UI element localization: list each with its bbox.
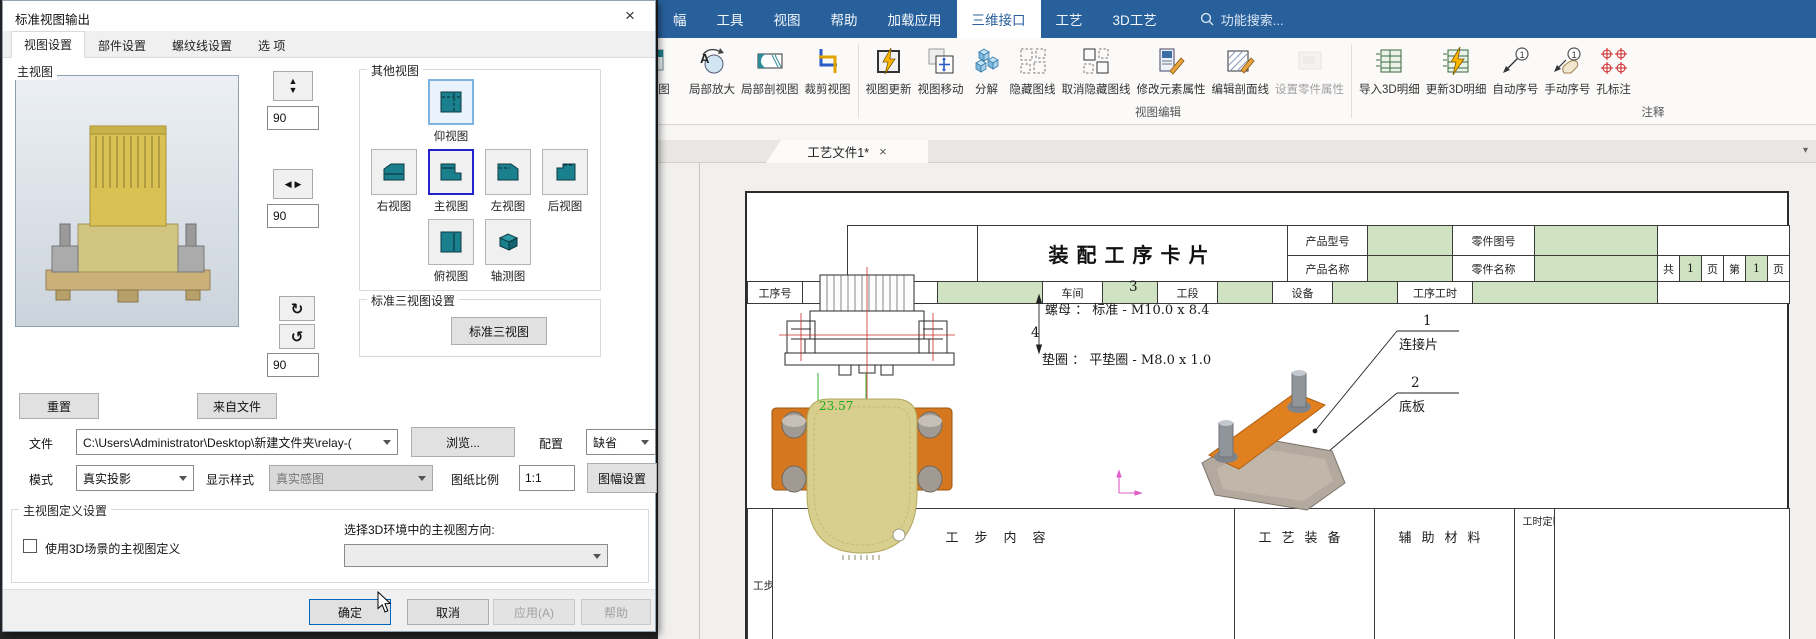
from-file-button[interactable]: 来自文件 bbox=[197, 393, 277, 419]
horizontal-angle-field[interactable]: 90 bbox=[267, 204, 319, 228]
ribbon-item-import-3d-bom[interactable]: 导入3D明细 bbox=[1356, 42, 1423, 99]
iso-view-label: 轴测图 bbox=[478, 268, 538, 284]
bottom-view-icon bbox=[438, 89, 464, 115]
ribbon-item-local-section[interactable]: 局部剖视图 bbox=[738, 42, 802, 99]
ribbon-item-update-3d-bom[interactable]: 更新3D明细 bbox=[1423, 42, 1490, 99]
apply-button: 应用(A) bbox=[493, 599, 575, 625]
browse-button[interactable]: 浏览... bbox=[411, 427, 515, 457]
balloon-1: 1 bbox=[1423, 313, 1432, 329]
main-view-def-group-label: 主视图定义设置 bbox=[19, 502, 111, 519]
svg-text:A: A bbox=[700, 51, 710, 66]
rotation-angle-field[interactable]: 90 bbox=[267, 353, 319, 377]
left-view-button[interactable] bbox=[485, 149, 531, 195]
panel-edge-line bbox=[699, 163, 700, 639]
back-view-button[interactable] bbox=[542, 149, 588, 195]
iso-view-icon bbox=[495, 229, 521, 255]
chevron-down-icon[interactable] bbox=[383, 440, 391, 445]
top-view-icon bbox=[438, 229, 464, 255]
edit-element-props-icon bbox=[1154, 44, 1188, 78]
relay-3d-preview bbox=[16, 76, 238, 326]
balloon-2: 2 bbox=[1411, 375, 1420, 391]
left-view-label: 左视图 bbox=[478, 198, 538, 214]
drawing-canvas[interactable]: 装配工序卡片 产品型号 零件图号 产品名称 零件名称 共 1 页 第 1 页 工… bbox=[658, 163, 1816, 639]
part-label-connector: 连接片 bbox=[1399, 334, 1438, 353]
ribbon-group-annotation: 注释 bbox=[1608, 104, 1698, 120]
chevron-down-icon bbox=[418, 476, 426, 481]
auto-balloon-icon: 1 bbox=[1498, 44, 1532, 78]
part-props-icon bbox=[1293, 44, 1327, 78]
top-view-label: 俯视图 bbox=[421, 268, 481, 284]
ribbon-item-crop-view[interactable]: 裁剪视图 bbox=[802, 42, 854, 99]
menu-item-3d-interface[interactable]: 三维接口 bbox=[957, 0, 1041, 38]
menu-bar: 幅 工具 视图 帮助 加载应用 三维接口 工艺 3D工艺 功能搜索... bbox=[658, 0, 1816, 38]
ribbon-item-manual-balloon[interactable]: 1 手动序号 bbox=[1541, 42, 1593, 99]
ribbon-separator bbox=[858, 44, 859, 118]
detail-zoom-icon: A bbox=[695, 44, 729, 78]
washer-spec-note: 垫圈 ： 平垫圈 - M8.0 x 1.0 bbox=[1042, 349, 1211, 368]
document-tab-label: 工艺文件1* bbox=[807, 142, 869, 161]
tab-options[interactable]: 选 项 bbox=[245, 33, 298, 57]
mode-value: 真实投影 bbox=[83, 470, 131, 487]
import-3d-bom-icon bbox=[1372, 44, 1406, 78]
horizontal-angle-value: 90 bbox=[273, 209, 286, 223]
display-style-label: 显示样式 bbox=[206, 471, 254, 488]
ribbon-separator bbox=[1351, 44, 1352, 118]
other-views-group-label: 其他视图 bbox=[367, 62, 423, 79]
view-move-icon bbox=[924, 44, 958, 78]
partial-view-icon bbox=[658, 44, 681, 78]
ribbon-item-explode[interactable]: 分解 bbox=[967, 42, 1007, 99]
bottom-view-button[interactable] bbox=[428, 79, 474, 125]
orientation-label: 选择3D环境中的主视图方向: bbox=[344, 521, 495, 538]
view-update-icon bbox=[872, 44, 906, 78]
nut-spec-note: 螺母 ： 标准 - M10.0 x 8.4 bbox=[1045, 299, 1209, 318]
search-icon bbox=[1200, 12, 1214, 26]
document-tab[interactable]: 工艺文件1* × bbox=[766, 140, 928, 163]
part-label-baseplate: 底板 bbox=[1399, 396, 1425, 415]
rotation-angle-value: 90 bbox=[273, 358, 286, 372]
balloon-4: 4 bbox=[1031, 325, 1040, 341]
hide-lines-icon bbox=[1016, 44, 1050, 78]
help-button: 帮助 bbox=[581, 599, 651, 625]
menu-item-help[interactable]: 帮助 bbox=[816, 0, 873, 38]
explode-icon bbox=[970, 44, 1004, 78]
mode-combo[interactable]: 真实投影 bbox=[76, 465, 194, 491]
down-arrow-icon[interactable]: ▼ bbox=[289, 86, 298, 95]
drawing-scale-field[interactable]: 1:1 bbox=[519, 465, 575, 491]
unhide-lines-icon bbox=[1079, 44, 1113, 78]
back-view-label: 后视图 bbox=[535, 198, 595, 214]
tab-view-settings[interactable]: 视图设置 bbox=[11, 31, 85, 58]
menu-item-view[interactable]: 视图 bbox=[759, 0, 816, 38]
reset-button[interactable]: 重置 bbox=[19, 393, 99, 419]
ribbon-item-part-props: 设置零件属性 bbox=[1272, 42, 1347, 99]
mode-label: 模式 bbox=[29, 471, 53, 488]
dialog-title: 标准视图输出 bbox=[15, 9, 90, 28]
manual-balloon-icon: 1 bbox=[1550, 44, 1584, 78]
dialog-titlebar[interactable]: 标准视图输出 × bbox=[3, 1, 655, 31]
menu-item-3d-process[interactable]: 3D工艺 bbox=[1098, 0, 1172, 38]
right-view-icon bbox=[381, 159, 407, 185]
drawing-scale-label: 图纸比例 bbox=[451, 471, 499, 488]
display-style-combo: 真实感图 bbox=[269, 465, 433, 491]
menu-item-sheet[interactable]: 幅 bbox=[658, 0, 702, 38]
ribbon-lower-strip bbox=[658, 125, 1816, 140]
local-section-icon bbox=[753, 44, 787, 78]
hole-callout-icon bbox=[1597, 44, 1631, 78]
ribbon-item-edit-element-props[interactable]: 修改元素属性 bbox=[1134, 42, 1209, 99]
rotate-cw-icon: ↻ bbox=[291, 300, 304, 318]
cad-window: 幅 工具 视图 帮助 加载应用 三维接口 工艺 3D工艺 功能搜索... 图 bbox=[658, 0, 1816, 639]
drawing-sheet: 装配工序卡片 产品型号 零件图号 产品名称 零件名称 共 1 页 第 1 页 工… bbox=[745, 191, 1789, 639]
cancel-button[interactable]: 取消 bbox=[407, 599, 489, 625]
main-view-group-label: 主视图 bbox=[13, 63, 57, 80]
menu-item-load-apps[interactable]: 加载应用 bbox=[873, 0, 957, 38]
vertical-angle-value: 90 bbox=[273, 111, 286, 125]
update-3d-bom-icon bbox=[1439, 44, 1473, 78]
drawing-views-graphics bbox=[747, 193, 1791, 639]
file-label: 文件 bbox=[29, 435, 53, 452]
rotate-ccw-button[interactable]: ↺ bbox=[279, 324, 315, 349]
search-placeholder: 功能搜索... bbox=[1221, 10, 1284, 29]
chevron-down-icon[interactable] bbox=[593, 554, 601, 559]
left-view-icon bbox=[495, 159, 521, 185]
chevron-down-icon[interactable] bbox=[179, 476, 187, 481]
document-tab-bar: 工艺文件1* × ▾ bbox=[658, 140, 1816, 163]
balloon-3: 3 bbox=[1129, 279, 1138, 295]
svg-text:1: 1 bbox=[1520, 50, 1525, 60]
use-3d-scene-checkbox[interactable] bbox=[23, 539, 37, 553]
ribbon-item-view-update[interactable]: 视图更新 bbox=[863, 42, 915, 99]
tab-thread-settings[interactable]: 螺纹线设置 bbox=[159, 33, 245, 57]
edit-hatch-icon bbox=[1223, 44, 1257, 78]
ribbon-item-detail-zoom[interactable]: A 局部放大 bbox=[686, 42, 738, 99]
std-three-view-button[interactable]: 标准三视图 bbox=[451, 317, 547, 345]
menu-item-process[interactable]: 工艺 bbox=[1041, 0, 1098, 38]
top-view-button[interactable] bbox=[428, 219, 474, 265]
mouse-cursor bbox=[377, 591, 392, 617]
crop-view-icon bbox=[811, 44, 845, 78]
vertical-angle-field[interactable]: 90 bbox=[267, 106, 319, 130]
tab-overflow-icon[interactable]: ▾ bbox=[1803, 145, 1808, 156]
iso-view-button[interactable] bbox=[485, 219, 531, 265]
back-view-icon bbox=[552, 159, 578, 185]
display-style-value: 真实感图 bbox=[276, 470, 324, 487]
right-view-button[interactable] bbox=[371, 149, 417, 195]
leftright-spin-button[interactable]: ◀ ▶ bbox=[273, 169, 313, 199]
bottom-view-label: 仰视图 bbox=[421, 128, 481, 144]
orientation-combo[interactable] bbox=[344, 544, 608, 567]
rotate-ccw-icon: ↺ bbox=[291, 328, 304, 346]
left-arrow-icon[interactable]: ◀ bbox=[285, 179, 292, 190]
ribbon-item-edit-hatch[interactable]: 编辑剖面线 bbox=[1209, 42, 1273, 99]
front-view-label: 主视图 bbox=[421, 198, 481, 214]
chevron-down-icon[interactable] bbox=[641, 440, 649, 445]
right-arrow-icon[interactable]: ▶ bbox=[295, 179, 302, 190]
tab-part-settings[interactable]: 部件设置 bbox=[85, 33, 159, 57]
screen: 幅 工具 视图 帮助 加载应用 三维接口 工艺 3D工艺 功能搜索... 图 bbox=[0, 0, 1816, 639]
drawing-scale-value: 1:1 bbox=[525, 471, 542, 485]
front-view-icon bbox=[438, 159, 464, 185]
svg-text:1: 1 bbox=[1572, 50, 1577, 60]
std-three-view-group-label: 标准三视图设置 bbox=[367, 292, 459, 309]
function-search[interactable]: 功能搜索... bbox=[1200, 0, 1284, 38]
ribbon-toolbar: 图 A 局部放大 局部剖视图 bbox=[658, 38, 1816, 125]
config-label: 配置 bbox=[539, 435, 563, 452]
dialog-tab-strip: 视图设置 部件设置 螺纹线设置 选 项 bbox=[3, 31, 655, 58]
standard-view-output-dialog: 标准视图输出 × 视图设置 部件设置 螺纹线设置 选 项 主视图 bbox=[2, 0, 656, 632]
document-tab-close-icon[interactable]: × bbox=[879, 144, 887, 159]
ribbon-item-hole-callout[interactable]: 孔标注 bbox=[1593, 42, 1634, 99]
config-combo[interactable]: 缺省 bbox=[586, 429, 656, 455]
file-path-value: C:\Users\Administrator\Desktop\新建文件夹\rel… bbox=[83, 434, 352, 451]
main-view-preview[interactable] bbox=[15, 75, 239, 327]
ribbon-item-view-move[interactable]: 视图移动 bbox=[915, 42, 967, 99]
ribbon-item-partial-view[interactable]: 图 bbox=[658, 42, 686, 99]
updown-spin-button[interactable]: ▲ ▼ bbox=[273, 71, 313, 101]
ribbon-item-unhide-lines[interactable]: 取消隐藏图线 bbox=[1059, 42, 1134, 99]
sheet-setup-button[interactable]: 图幅设置 bbox=[587, 463, 657, 493]
dialog-close-icon[interactable]: × bbox=[613, 4, 647, 28]
front-view-button[interactable] bbox=[428, 149, 474, 195]
menu-item-tools[interactable]: 工具 bbox=[702, 0, 759, 38]
right-view-label: 右视图 bbox=[364, 198, 424, 214]
rotate-cw-button[interactable]: ↻ bbox=[279, 296, 315, 321]
ribbon-item-auto-balloon[interactable]: 1 自动序号 bbox=[1489, 42, 1541, 99]
file-path-combo[interactable]: C:\Users\Administrator\Desktop\新建文件夹\rel… bbox=[76, 429, 398, 455]
ribbon-group-view-edit: 视图编辑 bbox=[1113, 104, 1203, 120]
config-value: 缺省 bbox=[593, 434, 617, 451]
dimension-value: 23.57 bbox=[819, 399, 853, 413]
use-3d-scene-label: 使用3D场景的主视图定义 bbox=[45, 540, 180, 557]
ribbon-item-hide-lines[interactable]: 隐藏图线 bbox=[1007, 42, 1059, 99]
